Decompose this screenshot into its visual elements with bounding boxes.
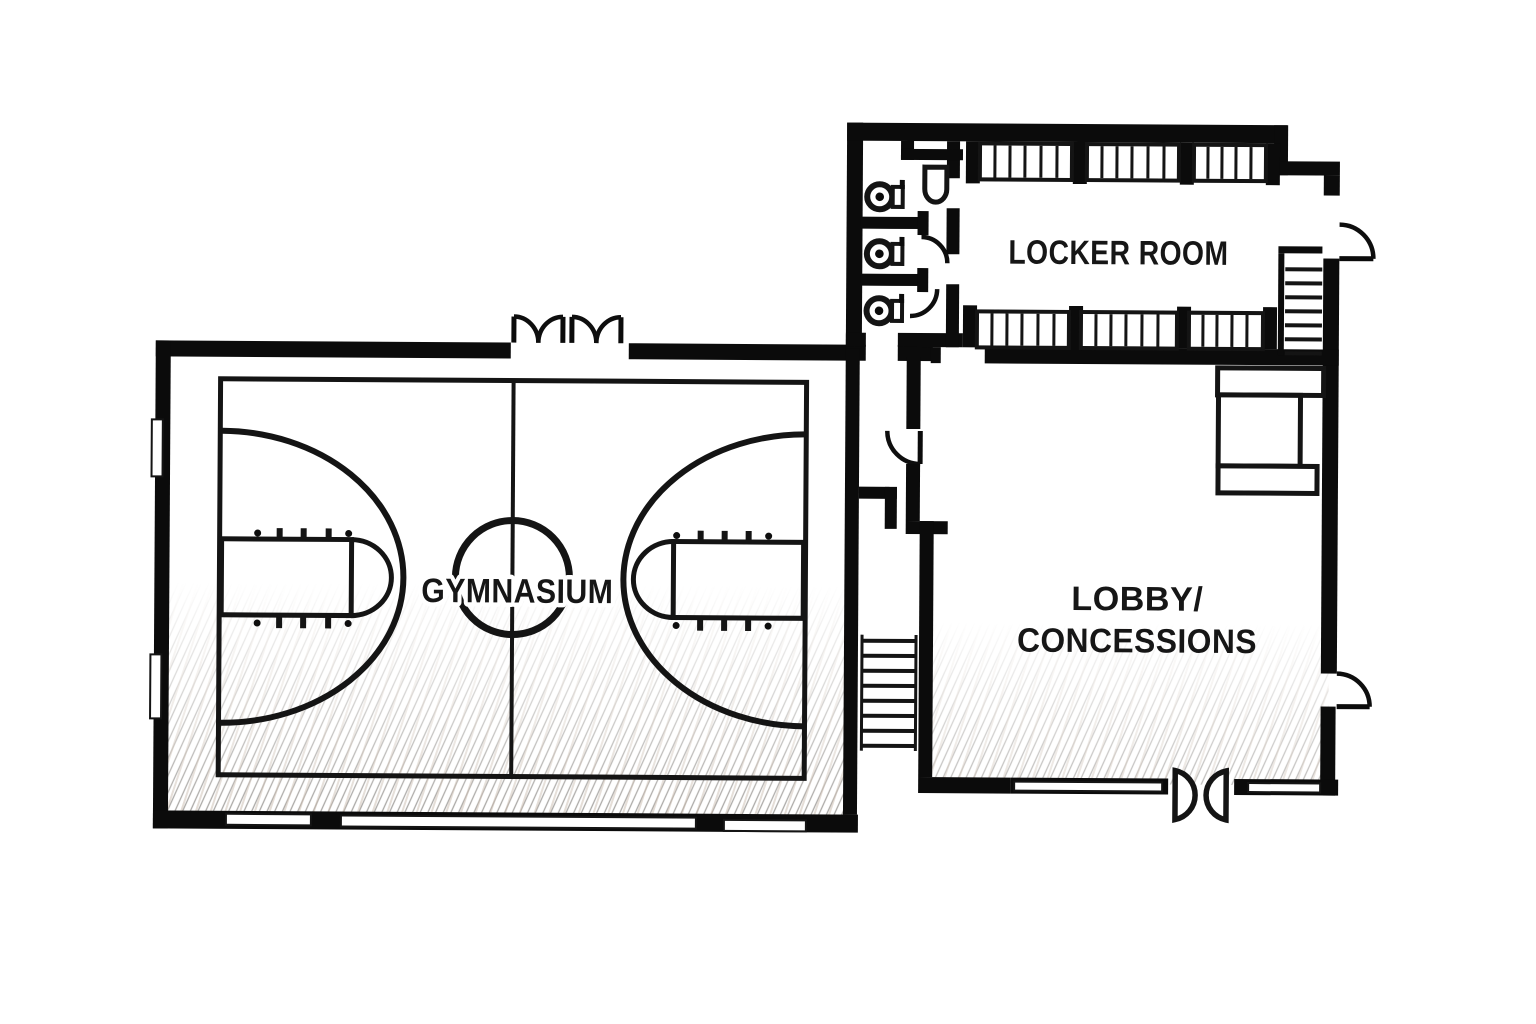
window-opening	[1248, 783, 1320, 792]
exterior-door-icon	[1337, 674, 1370, 707]
toilet-icon	[866, 294, 904, 324]
stall-partition	[861, 217, 925, 229]
floor-plan-canvas: GYMNASIUM	[0, 0, 1536, 1024]
locker-room-label: LOCKER ROOM	[1008, 234, 1228, 273]
locker-bank	[1194, 145, 1266, 181]
locker-staircase	[1278, 246, 1323, 355]
window-opening	[1014, 782, 1162, 792]
stall-partition	[860, 274, 924, 286]
toilet-icon	[867, 180, 905, 210]
window-opening	[150, 654, 161, 718]
interior-door-icon	[887, 431, 920, 464]
gymnasium-label: GYMNASIUM	[421, 572, 613, 611]
window-opening	[341, 816, 696, 829]
locker-bank	[977, 311, 1069, 348]
middle-staircase	[861, 635, 916, 751]
locker-bank	[980, 143, 1072, 180]
locker-bank	[1087, 144, 1179, 181]
window-opening	[152, 419, 163, 476]
concession-counter	[1217, 368, 1324, 494]
window-opening	[226, 814, 311, 826]
locker-bank	[1081, 312, 1177, 349]
stall-door-arc-icon	[910, 289, 937, 316]
sink-icon	[925, 167, 947, 202]
toilet-icon	[867, 237, 905, 267]
stall-door-arc-icon	[921, 237, 947, 263]
lobby-label-line2: CONCESSIONS	[1017, 622, 1257, 661]
restrooms	[846, 123, 964, 350]
window-opening	[724, 820, 806, 832]
floor-plan-drawing: GYMNASIUM	[0, 0, 1536, 1024]
gym-double-door-icon	[514, 317, 621, 344]
locker-bank	[1189, 313, 1263, 349]
lobby-label-line1: LOBBY/	[1071, 580, 1203, 619]
exterior-door-icon	[1339, 225, 1373, 259]
